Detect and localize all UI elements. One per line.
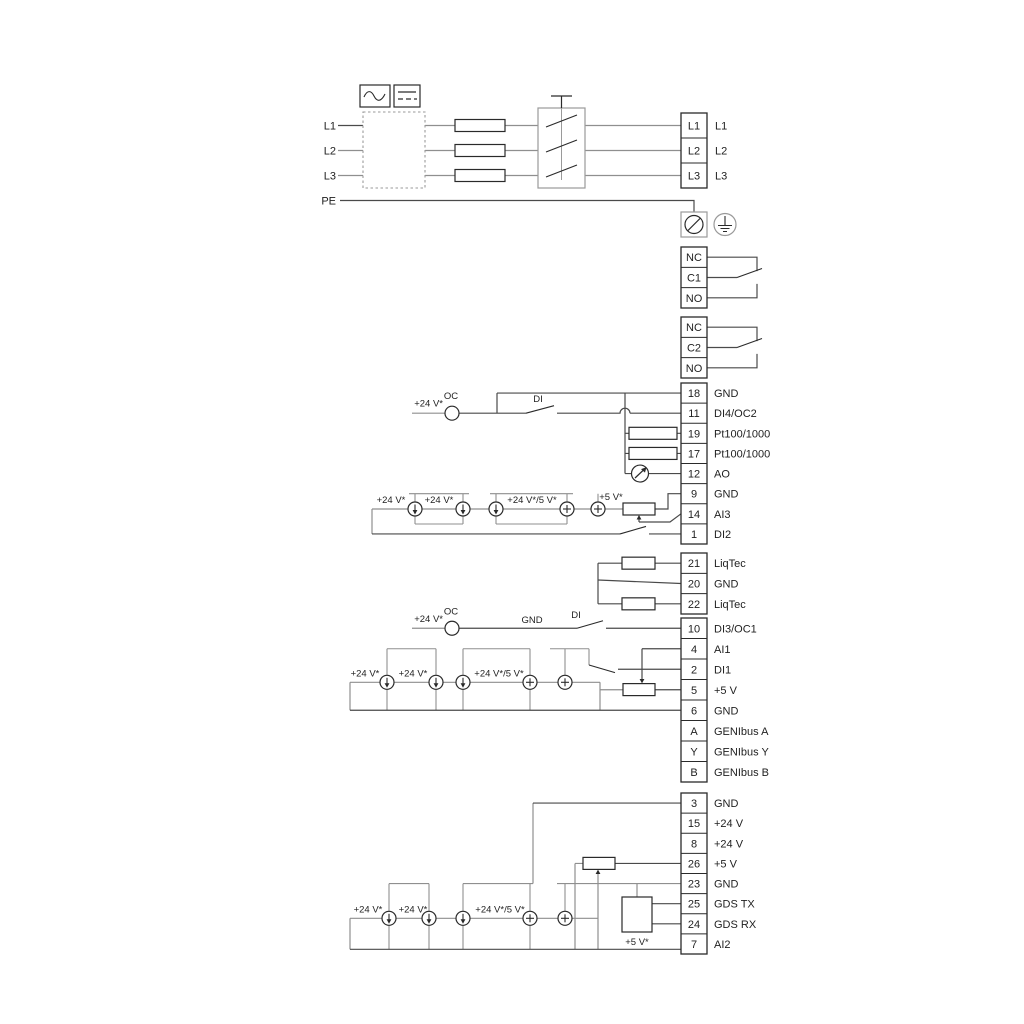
relay-no-wire bbox=[707, 284, 757, 298]
current-source-icon bbox=[489, 502, 503, 516]
terminal-function-label: LiqTec bbox=[714, 558, 746, 570]
wiper-arrow-head bbox=[640, 679, 645, 683]
terminal-function-label: GENIbus A bbox=[714, 726, 769, 738]
switch-blade-icon bbox=[737, 339, 762, 348]
switch-blade-icon bbox=[737, 269, 762, 278]
open-collector-icon bbox=[445, 406, 459, 420]
v24v5-label: +24 V*/5 V* bbox=[475, 904, 525, 915]
bracket-wire bbox=[415, 516, 463, 524]
terminal-function-label: +5 V bbox=[714, 685, 738, 697]
open-collector-icon bbox=[445, 621, 459, 635]
terminal-number: 15 bbox=[688, 818, 700, 830]
terminal-number: C2 bbox=[687, 343, 701, 355]
di-label: DI bbox=[571, 610, 581, 621]
terminal-function-label: +24 V bbox=[714, 818, 744, 830]
gds-sensor-box bbox=[622, 897, 652, 932]
potentiometer-icon bbox=[623, 503, 655, 515]
bracket-wire bbox=[496, 516, 567, 524]
terminal-number: 7 bbox=[691, 939, 697, 951]
terminal-number: A bbox=[690, 726, 698, 738]
terminal-number: B bbox=[690, 767, 697, 779]
resistor-icon bbox=[622, 557, 655, 569]
fuse-icon bbox=[455, 120, 505, 132]
terminal-function-label: GND bbox=[714, 798, 739, 810]
pot-wire bbox=[655, 494, 681, 509]
terminal-number: 19 bbox=[688, 428, 700, 440]
phase-input-label: L2 bbox=[324, 146, 336, 158]
current-source-icon bbox=[382, 911, 396, 925]
current-source-icon bbox=[429, 675, 443, 689]
di-wire bbox=[557, 408, 681, 413]
terminal-function-label: GND bbox=[714, 489, 739, 501]
v24-label: +24 V* bbox=[414, 399, 443, 410]
phase-output-label: L3 bbox=[715, 171, 727, 183]
relay-nc-wire bbox=[707, 257, 757, 271]
terminal-function-label: GND bbox=[714, 579, 739, 591]
v24-label: +24 V* bbox=[377, 495, 406, 506]
terminal-function-label: Pt100/1000 bbox=[714, 448, 770, 460]
terminal-function-label: DI2 bbox=[714, 529, 731, 541]
current-source-icon bbox=[456, 911, 470, 925]
terminal-function-label: GDS TX bbox=[714, 899, 755, 911]
terminal-function-label: AI2 bbox=[714, 939, 731, 951]
potentiometer-icon bbox=[583, 857, 615, 869]
v5-label: +5 V* bbox=[625, 937, 649, 948]
terminal-function-label: GND bbox=[714, 879, 739, 891]
terminal-number: 25 bbox=[688, 899, 700, 911]
terminal-function-label: +5 V bbox=[714, 858, 738, 870]
relay-nc-wire bbox=[707, 327, 757, 341]
v24v5-label: +24 V*/5 V* bbox=[507, 495, 557, 506]
terminal-number: 2 bbox=[691, 664, 697, 676]
terminal-number: 6 bbox=[691, 705, 697, 717]
earth-glyph bbox=[718, 216, 732, 232]
terminal-number: 1 bbox=[691, 529, 697, 541]
dc-symbol-icon bbox=[394, 85, 420, 107]
wiring-diagram: L1L2L3L1L2L3PEL1L2L3NCC1NONCC2NO18GND11D… bbox=[0, 0, 1024, 1024]
pot-return-wire bbox=[575, 863, 583, 949]
terminal-number: NO bbox=[686, 363, 703, 375]
bracket-wire bbox=[389, 925, 530, 949]
terminal-number: L2 bbox=[688, 146, 700, 158]
resistor-icon bbox=[622, 598, 655, 610]
pot-return-wire bbox=[600, 682, 623, 710]
pe-wire bbox=[340, 201, 694, 213]
fuse-icon bbox=[455, 170, 505, 182]
phase-output-label: L1 bbox=[715, 121, 727, 133]
current-source-icon bbox=[408, 502, 422, 516]
v24-label: +24 V* bbox=[354, 904, 383, 915]
resistor-icon bbox=[629, 427, 677, 439]
v24-label: +24 V* bbox=[399, 904, 428, 915]
liqtec-gnd-wire bbox=[598, 580, 681, 584]
v24-label: +24 V* bbox=[351, 668, 380, 679]
phase-input-label: L1 bbox=[324, 121, 336, 133]
phase-input-label: L3 bbox=[324, 171, 336, 183]
terminal-function-label: AO bbox=[714, 469, 730, 481]
fuse-icon bbox=[455, 145, 505, 157]
terminal-number: NO bbox=[686, 293, 703, 305]
rail-wire bbox=[550, 649, 589, 676]
terminal-number: 4 bbox=[691, 644, 697, 656]
oc-label: OC bbox=[444, 606, 458, 617]
gnd-label: GND bbox=[521, 615, 542, 626]
voltage-source-icon bbox=[523, 675, 537, 689]
wires-layer bbox=[350, 126, 681, 950]
terminal-number: 26 bbox=[688, 858, 700, 870]
terminal-function-label: DI4/OC2 bbox=[714, 408, 757, 420]
current-source-icon bbox=[456, 502, 470, 516]
relay-no-wire bbox=[707, 354, 757, 368]
terminal-number: L3 bbox=[688, 171, 700, 183]
terminal-function-label: GND bbox=[714, 388, 739, 400]
terminal-number: 5 bbox=[691, 685, 697, 697]
terminal-number: 21 bbox=[688, 558, 700, 570]
current-source-icon bbox=[456, 675, 470, 689]
terminal-function-label: +24 V bbox=[714, 838, 744, 850]
terminal-number: 10 bbox=[688, 623, 700, 635]
terminal-function-label: AI3 bbox=[714, 509, 731, 521]
v24-label: +24 V* bbox=[425, 495, 454, 506]
terminal-function-label: LiqTec bbox=[714, 599, 746, 611]
terminal-function-label: Pt100/1000 bbox=[714, 428, 770, 440]
phase-output-label: L2 bbox=[715, 146, 727, 158]
terminal-number: 12 bbox=[688, 469, 700, 481]
v24-label: +24 V* bbox=[414, 614, 443, 625]
terminal-number: NC bbox=[686, 322, 702, 334]
pe-label: PE bbox=[321, 196, 336, 208]
terminal-function-label: DI3/OC1 bbox=[714, 623, 757, 635]
voltage-source-icon bbox=[560, 502, 574, 516]
terminal-function-label: GDS RX bbox=[714, 919, 757, 931]
terminal-number: 24 bbox=[688, 919, 700, 931]
terminal-number: 18 bbox=[688, 388, 700, 400]
v24v5-label: +24 V*/5 V* bbox=[474, 668, 524, 679]
terminal-number: 17 bbox=[688, 448, 700, 460]
frequency-converter-box bbox=[363, 112, 425, 188]
terminal-function-label: GENIbus Y bbox=[714, 746, 769, 758]
terminal-number: C1 bbox=[687, 273, 701, 285]
oc-label: OC bbox=[444, 391, 458, 402]
terminal-number: 23 bbox=[688, 879, 700, 891]
v24-label: +24 V* bbox=[399, 668, 428, 679]
terminal-number: 20 bbox=[688, 579, 700, 591]
wiring-diagram-canvas: L1L2L3L1L2L3PEL1L2L3NCC1NONCC2NO18GND11D… bbox=[0, 0, 1024, 1024]
voltage-source-icon bbox=[558, 675, 572, 689]
terminal-number: 3 bbox=[691, 798, 697, 810]
terminal-number: 11 bbox=[688, 408, 699, 420]
switch-blade-icon bbox=[577, 621, 603, 629]
voltage-source-icon bbox=[591, 502, 605, 516]
v5-label: +5 V* bbox=[599, 492, 623, 503]
terminal-number: 9 bbox=[691, 489, 697, 501]
voltage-source-icon bbox=[558, 911, 572, 925]
switch-handle-icon bbox=[551, 96, 572, 108]
terminal-number: NC bbox=[686, 252, 702, 264]
gds-wire bbox=[652, 904, 681, 924]
terminal-number: Y bbox=[690, 746, 698, 758]
resistor-icon bbox=[629, 447, 677, 459]
terminal-number: 14 bbox=[688, 509, 700, 521]
switch-blade-icon bbox=[589, 665, 615, 673]
wiper-arrow-head bbox=[637, 515, 642, 520]
terminal-function-label: GENIbus B bbox=[714, 767, 769, 779]
terminal-function-label: DI1 bbox=[714, 664, 731, 676]
terminal-number: 22 bbox=[688, 599, 700, 611]
wiper-arrow-head bbox=[596, 870, 601, 874]
terminal-function-label: AI1 bbox=[714, 644, 731, 656]
switch-blade-icon bbox=[526, 406, 554, 414]
bracket-wire bbox=[387, 689, 530, 710]
di-label: DI bbox=[533, 394, 543, 405]
terminal-number: L1 bbox=[688, 121, 700, 133]
switch-blade-icon bbox=[620, 526, 646, 534]
potentiometer-icon bbox=[623, 684, 655, 696]
current-source-icon bbox=[380, 675, 394, 689]
terminal-function-label: GND bbox=[714, 705, 739, 717]
terminal-number: 8 bbox=[691, 838, 697, 850]
voltage-source-icon bbox=[523, 911, 537, 925]
